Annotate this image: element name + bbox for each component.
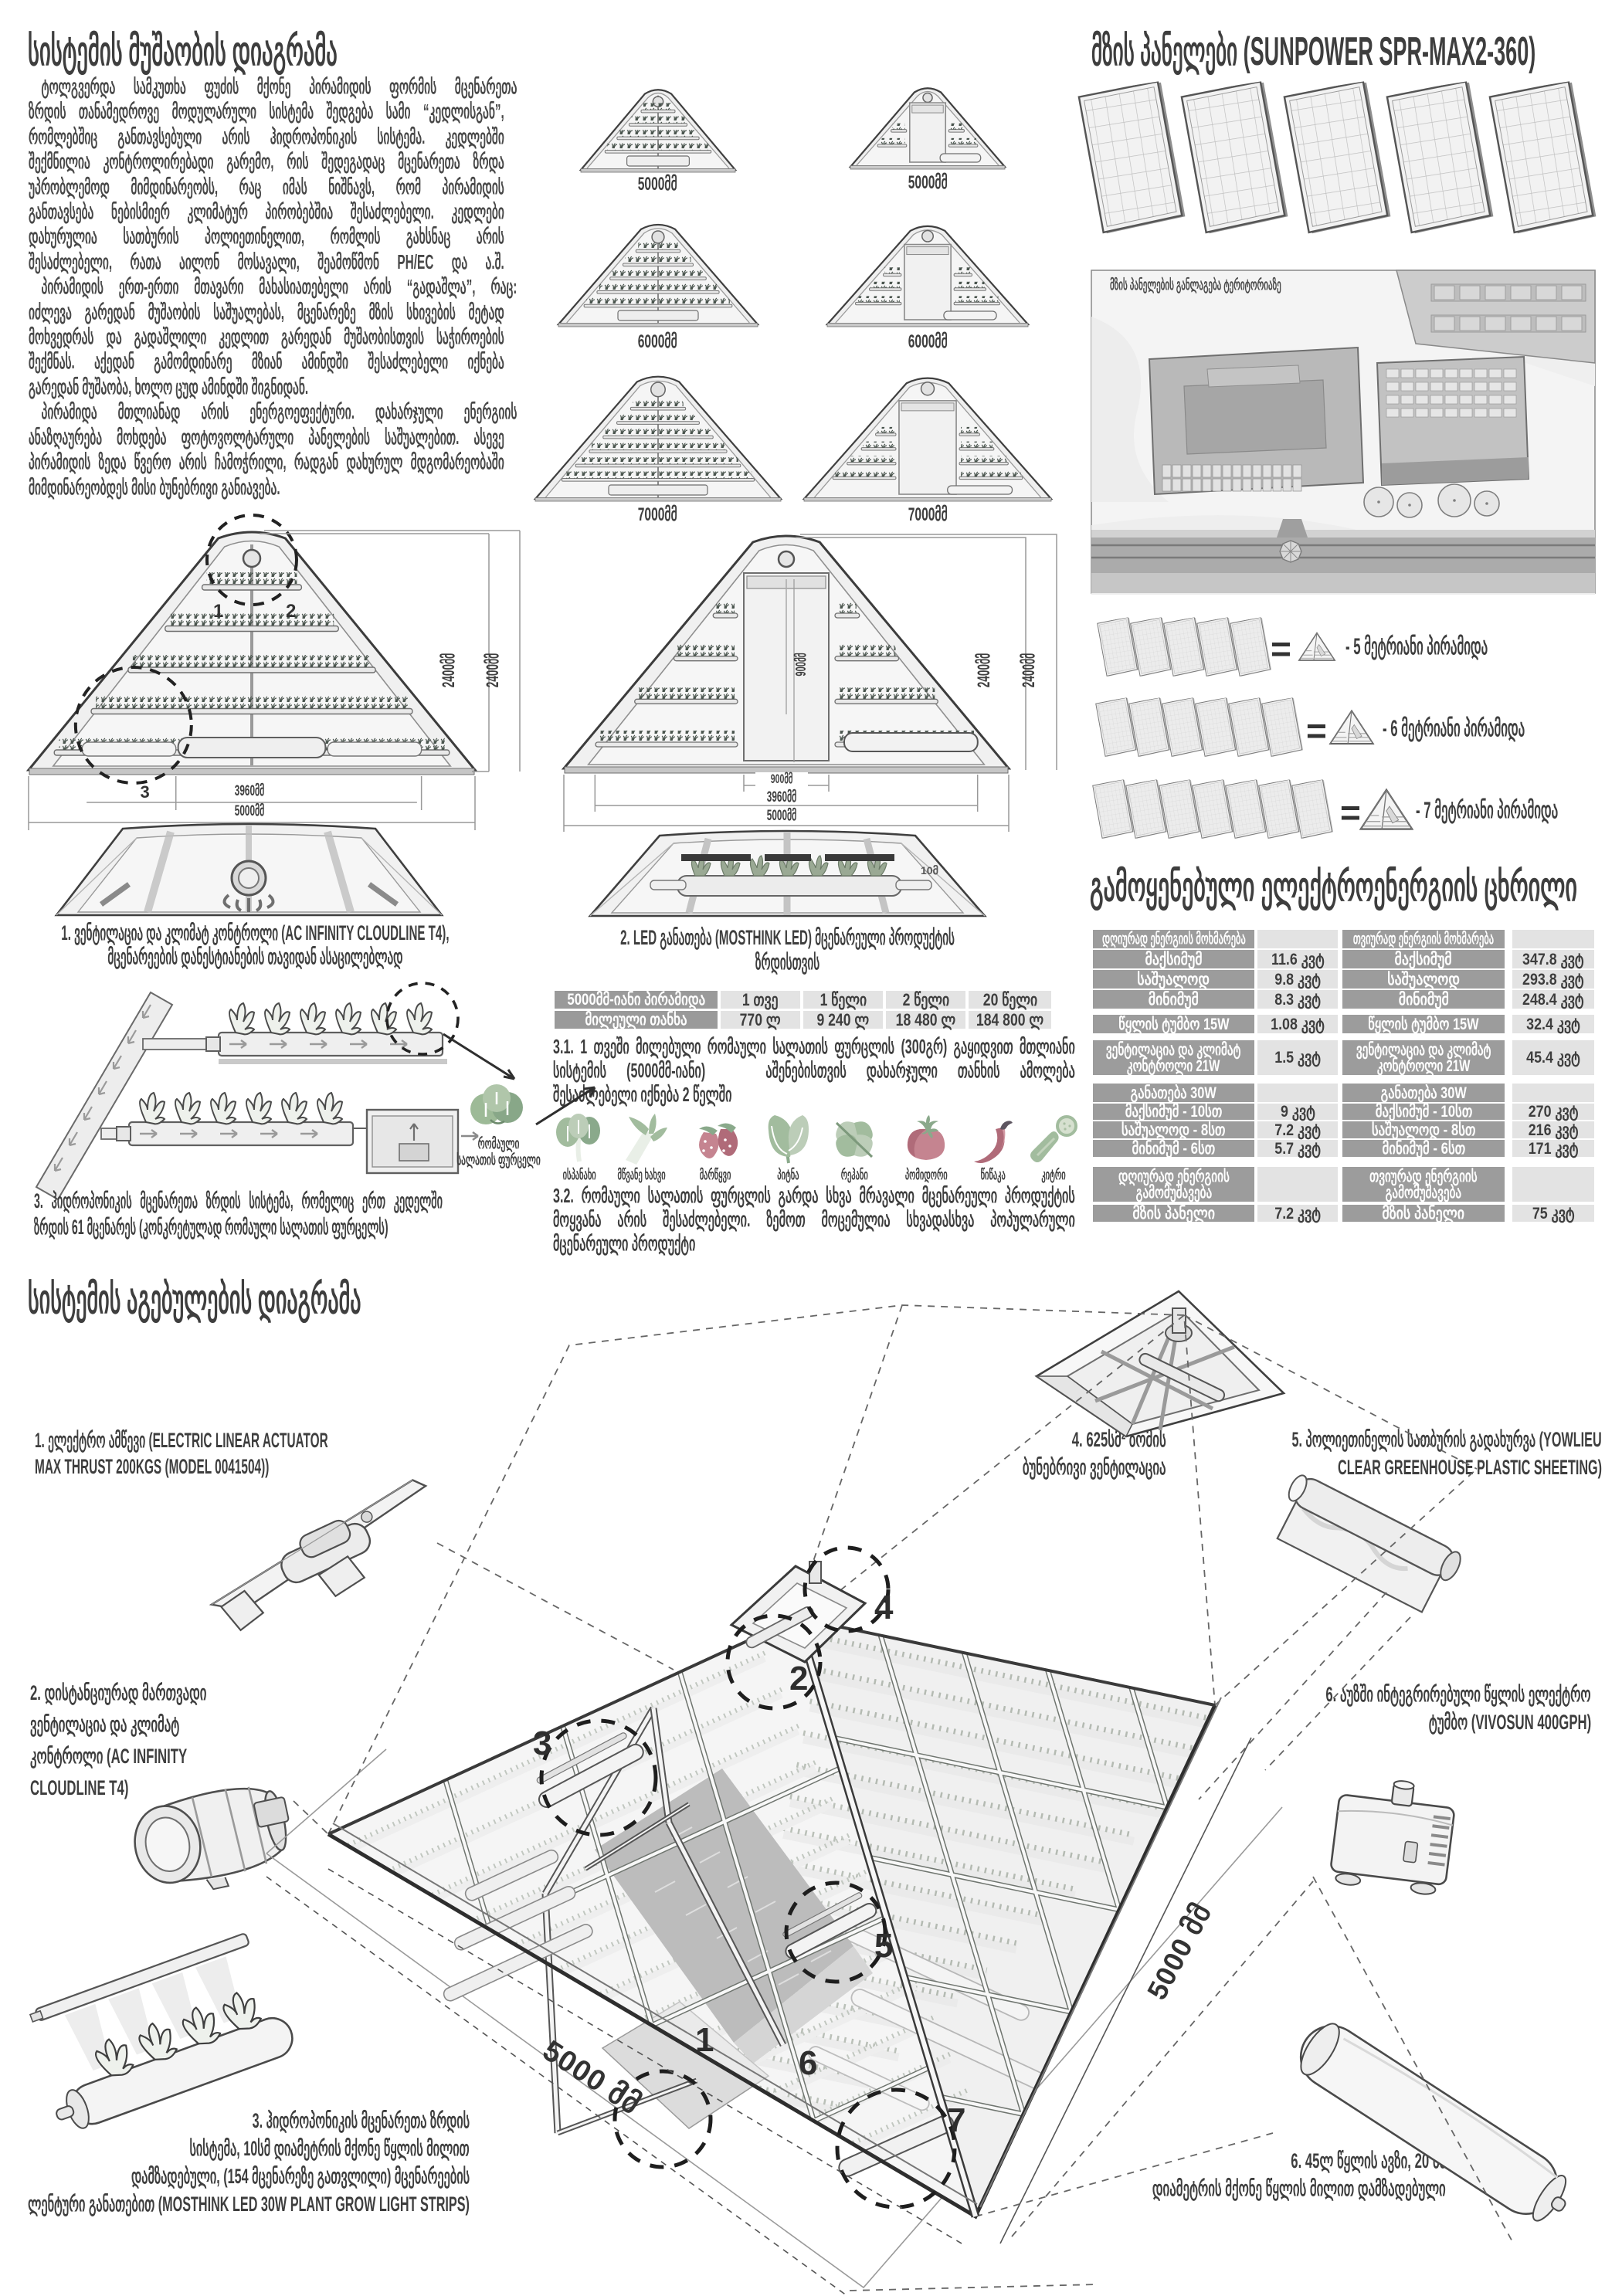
svg-text:2: 2: [286, 601, 296, 622]
svg-text:5000 მმ: 5000 მმ: [1141, 1898, 1217, 2005]
svg-text:7: 7: [947, 2101, 965, 2139]
svg-text:3: 3: [533, 1725, 551, 1762]
svg-text:4: 4: [874, 1589, 894, 1626]
svg-text:=: =: [1306, 711, 1327, 751]
svg-text:6: 6: [799, 2044, 817, 2082]
svg-text:=: =: [1271, 629, 1291, 669]
svg-text:5: 5: [874, 1927, 893, 1965]
svg-text:1: 1: [695, 2021, 714, 2059]
svg-text:=: =: [1340, 792, 1361, 833]
svg-text:1: 1: [213, 601, 223, 622]
svg-text:10მ: 10მ: [921, 864, 938, 877]
svg-text:2: 2: [789, 1660, 808, 1697]
svg-text:3: 3: [141, 782, 150, 802]
